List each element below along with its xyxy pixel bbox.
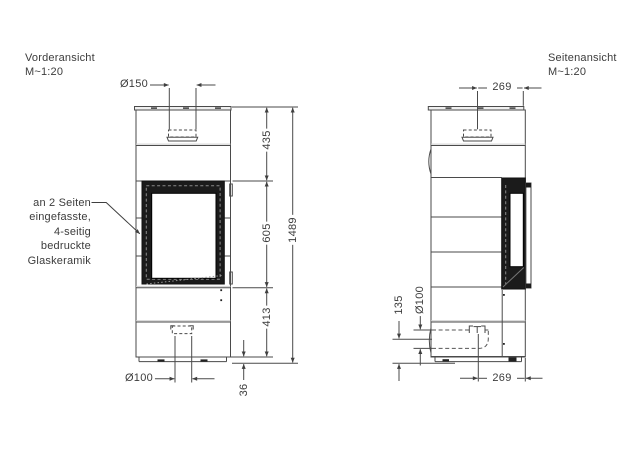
glass-annotation-line: eingefasste, [7,210,91,224]
dim-front-offset: 269 [490,372,513,384]
dim-air-inlet-diameter-front: Ø100 [123,372,155,384]
dim-air-inlet-height: 135 [393,293,405,316]
glass-annotation: an 2 Seiten eingefasste, 4-seitig bedruc… [7,196,91,268]
dim-lower-height: 413 [261,305,273,328]
side-view-title: Seitenansicht [548,51,617,65]
dim-flue-diameter: Ø150 [118,78,150,90]
front-view-scale: M~1:20 [25,65,95,79]
front-view-title-block: Vorderansicht M~1:20 [25,51,95,80]
glass-annotation-line: Glaskeramik [7,254,91,268]
dim-total-height: 1489 [287,215,299,245]
technical-drawing-page: Vorderansicht M~1:20 Seitenansicht M~1:2… [0,0,624,460]
dim-flue-offset: 269 [490,81,513,93]
dim-glass-height: 605 [261,221,273,244]
side-view-scale: M~1:20 [548,65,617,79]
side-view-drawing [428,107,531,362]
dim-plinth-height: 36 [238,382,250,399]
front-view-title: Vorderansicht [25,51,95,65]
glass-annotation-leader-line [92,203,140,234]
glass-annotation-line: an 2 Seiten [7,196,91,210]
dim-upper-height: 435 [261,128,273,151]
front-view-drawing [135,107,233,362]
glass-annotation-line: 4-seitig [7,225,91,239]
side-view-title-block: Seitenansicht M~1:20 [548,51,617,80]
dim-air-inlet-diameter-side: Ø100 [414,284,426,316]
glass-annotation-line: bedruckte [7,239,91,253]
